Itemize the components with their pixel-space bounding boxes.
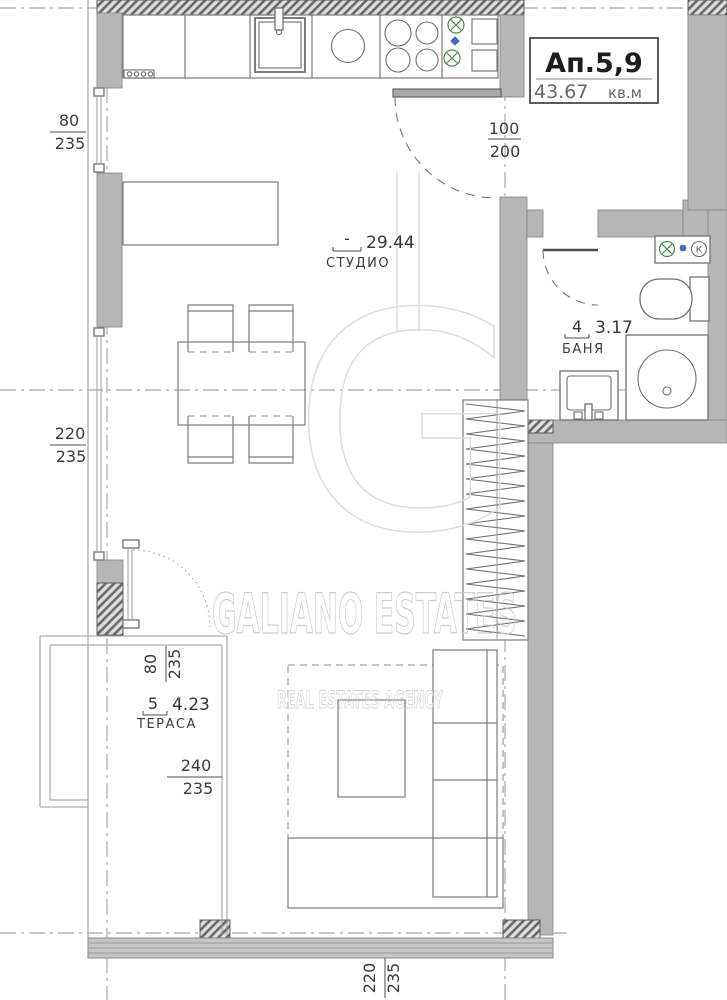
apartment-area-unit: кв.м [608, 84, 642, 102]
studio-right-wall [528, 443, 553, 935]
water-point-icon [680, 245, 686, 251]
entry-door-leaf [393, 89, 501, 97]
studio-number: - [344, 229, 350, 248]
bathroom-number: 4 [572, 317, 582, 336]
watermark-tagline: REAL ESTATES AGENCY [277, 686, 443, 714]
dim-value: 200 [490, 142, 521, 161]
dim-value: 220 [55, 424, 86, 443]
terrace-door [123, 540, 210, 628]
dim-value: 80 [141, 654, 160, 674]
dim-value: 220 [360, 963, 379, 994]
terrace-name: ТЕРАСА [136, 717, 197, 732]
studio-area: 29.44 [366, 233, 415, 253]
sink-faucet-icon [275, 8, 283, 30]
kitchen [123, 8, 498, 78]
title-block: Ап.5,9 43.67 кв.м [530, 38, 658, 103]
watermark-brand: GALIANO ESTATES [212, 582, 517, 646]
washbasin [560, 371, 618, 420]
shower [626, 335, 708, 420]
pier-mid-left [97, 173, 122, 327]
chair [188, 416, 233, 463]
dim-window-left-top: 80 235 [50, 111, 86, 153]
bath-top-wall-b [598, 210, 683, 237]
dim-terrace-window: 80 235 [141, 646, 184, 682]
bath-door-swing-arc [543, 250, 598, 305]
entry-door-swing-arc [395, 97, 496, 198]
dim-value: 235 [384, 963, 403, 994]
kitchen-sink [255, 8, 305, 72]
dim-value: 100 [489, 119, 520, 138]
right-wall-bath [708, 210, 727, 420]
room-label-bathroom: 4 3.17 БАНЯ [562, 317, 633, 357]
dim-window-left-middle: 220 235 [50, 424, 86, 466]
apartment-number: Ап.5,9 [545, 48, 643, 79]
dim-value: 80 [59, 111, 79, 130]
dim-value: 235 [165, 649, 184, 680]
terrace-area: 4.23 [172, 695, 210, 715]
bath-bottom-wall [528, 420, 727, 443]
entry-door [393, 89, 501, 198]
basin-faucet-icon [585, 404, 592, 420]
watermark-monogram: G [292, 250, 524, 599]
chair [249, 305, 293, 352]
bottom-pier-hatch-left [200, 920, 230, 940]
apartment-area: 43.67 [534, 81, 588, 103]
bath-valve-panel: К [655, 236, 710, 263]
terrace-number: 5 [148, 694, 158, 713]
entry-jamb-wall [500, 15, 524, 97]
right-wall-upper [688, 15, 727, 210]
dim-entry-door: 100 200 [488, 119, 521, 161]
dim-value: 240 [181, 756, 212, 775]
bottom-glazing [88, 938, 553, 958]
dining-table [178, 342, 305, 425]
toilet [640, 277, 709, 321]
bath-corner-hatch [528, 420, 553, 433]
studio-name: СТУДИО [326, 256, 390, 271]
bathroom-area: 3.17 [595, 318, 633, 338]
dim-terrace-glazing: 240 235 [167, 756, 222, 798]
meter-label: К [696, 246, 703, 256]
sideboard [123, 182, 278, 245]
terrace-door-swing-arc [133, 550, 210, 627]
chair [188, 305, 233, 352]
floor-plan-page: К [0, 0, 727, 1000]
dim-value: 235 [56, 447, 87, 466]
top-wall-hatch [97, 0, 524, 15]
room-label-terrace: 5 4.23 ТЕРАСА [136, 694, 210, 732]
pier-low-left-hatch [97, 583, 123, 635]
watermark: G GALIANO ESTATES REAL ESTATES AGENCY [212, 172, 524, 714]
pier-top-left [97, 13, 122, 88]
top-right-wall-hatch [688, 0, 727, 15]
window-left-middle [94, 328, 104, 560]
chair [249, 416, 293, 463]
window-left-top [94, 88, 104, 172]
dim-value: 235 [183, 779, 214, 798]
bathroom-name: БАНЯ [562, 342, 605, 357]
dining-set [178, 305, 305, 463]
bottom-pier-hatch-right [503, 920, 540, 940]
bath-top-wall-a [527, 210, 543, 237]
left-windows [94, 88, 210, 628]
side-table [338, 700, 405, 797]
dim-value: 235 [55, 134, 86, 153]
dim-bottom-glazing: 220 235 [360, 958, 403, 998]
floor-plan-canvas: К [0, 0, 727, 1000]
pier-low-left [97, 560, 123, 583]
